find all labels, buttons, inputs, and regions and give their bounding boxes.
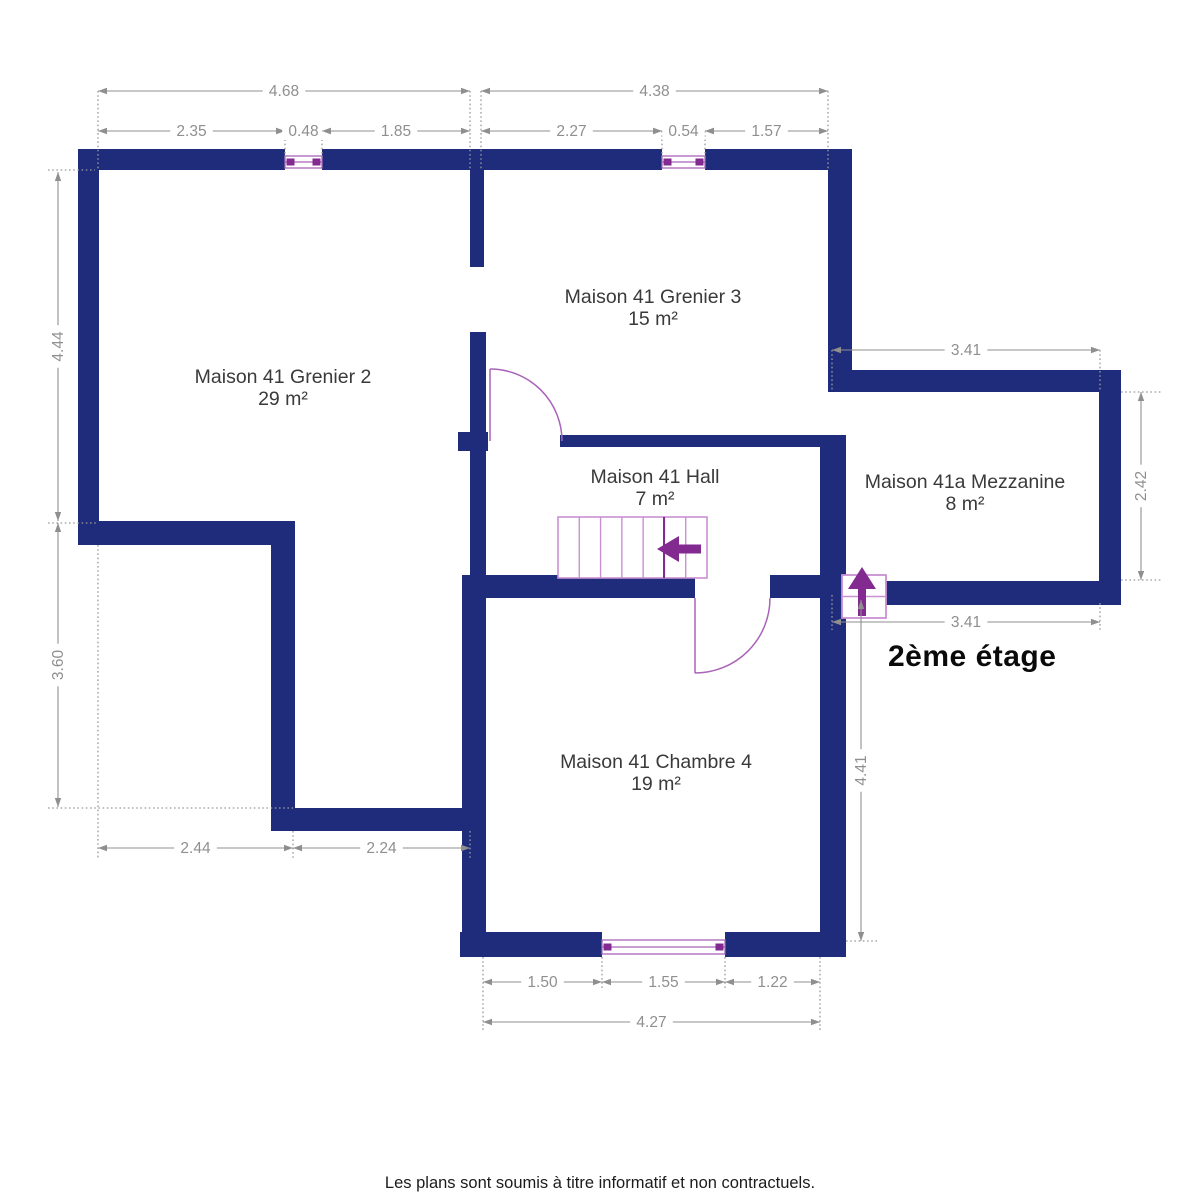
wall-segment bbox=[846, 370, 1121, 392]
dim-label-group: 0.48 bbox=[282, 122, 325, 140]
dim-arrowhead bbox=[811, 1019, 820, 1025]
dimension-value: 1.85 bbox=[381, 123, 411, 140]
dim-arrowhead bbox=[98, 88, 107, 94]
dim-arrowhead bbox=[593, 979, 602, 985]
wall-segment bbox=[78, 521, 295, 545]
dim-arrowhead bbox=[1091, 619, 1100, 625]
dimension-value: 2.27 bbox=[556, 123, 586, 140]
dim-arrowhead bbox=[811, 979, 820, 985]
dim-label-group: 2.24 bbox=[360, 839, 403, 857]
room-area: 19 m² bbox=[631, 773, 681, 795]
dim-arrowhead bbox=[461, 128, 470, 134]
door-arc bbox=[695, 598, 770, 673]
wall-segment bbox=[470, 170, 484, 267]
window-end-block bbox=[716, 944, 724, 951]
dimension-value: 2.44 bbox=[180, 840, 211, 857]
room-name: Maison 41 Hall bbox=[591, 466, 720, 488]
dim-label-group: 4.68 bbox=[263, 82, 306, 100]
room-name: Maison 41a Mezzanine bbox=[865, 471, 1066, 493]
door-arc bbox=[490, 369, 562, 441]
floor-plan-canvas: 4.684.382.350.481.852.270.541.574.443.60… bbox=[0, 0, 1200, 1200]
wall-segment bbox=[271, 808, 486, 831]
dimension-value: 4.27 bbox=[636, 1014, 666, 1031]
window-end-block bbox=[604, 944, 612, 951]
dim-arrowhead bbox=[55, 172, 61, 181]
dimension-value: 4.68 bbox=[269, 83, 299, 100]
dim-arrowhead bbox=[653, 128, 662, 134]
room-area: 29 m² bbox=[258, 388, 308, 410]
dim-arrowhead bbox=[819, 128, 828, 134]
dim-arrowhead bbox=[284, 845, 293, 851]
dim-arrowhead bbox=[98, 845, 107, 851]
dim-label-group: 1.22 bbox=[751, 973, 794, 991]
dim-label-group: 2.44 bbox=[174, 839, 217, 857]
dimension-value: 4.41 bbox=[853, 755, 870, 785]
dimension-value: 4.38 bbox=[639, 83, 669, 100]
window-end-block bbox=[313, 159, 321, 166]
dim-arrowhead bbox=[55, 523, 61, 532]
dimension-value: 2.42 bbox=[1133, 471, 1150, 501]
wall-segment bbox=[560, 435, 830, 447]
wall-segment bbox=[470, 332, 486, 598]
wall-segment bbox=[820, 435, 846, 957]
dimension-value: 1.50 bbox=[527, 974, 558, 991]
dim-arrowhead bbox=[483, 979, 492, 985]
dim-label-group: 1.55 bbox=[642, 973, 685, 991]
dim-arrowhead bbox=[293, 845, 302, 851]
window-end-block bbox=[664, 159, 672, 166]
room-name: Maison 41 Grenier 2 bbox=[195, 366, 372, 388]
wall-segment bbox=[1099, 370, 1121, 605]
dimension-value: 2.24 bbox=[366, 840, 397, 857]
wall-segment bbox=[770, 575, 846, 598]
dimension-value: 1.55 bbox=[648, 974, 678, 991]
window-end-block bbox=[696, 159, 704, 166]
wall-segment bbox=[78, 149, 99, 545]
dim-label-group: 0.54 bbox=[662, 122, 705, 140]
dim-arrowhead bbox=[1138, 392, 1144, 401]
dim-label-group: 1.85 bbox=[375, 122, 418, 140]
room-area: 15 m² bbox=[628, 308, 678, 330]
dim-label-group: 4.27 bbox=[630, 1013, 673, 1031]
wall-segment bbox=[725, 932, 846, 957]
window-end-block bbox=[287, 159, 295, 166]
dimension-value: 3.41 bbox=[951, 614, 981, 631]
dimension-value: 3.60 bbox=[50, 650, 67, 681]
dim-label-group: 3.41 bbox=[945, 613, 988, 631]
dim-label-group: 2.42 bbox=[1132, 465, 1150, 508]
dim-arrowhead bbox=[858, 932, 864, 941]
wall-segment bbox=[271, 521, 295, 831]
dim-label-group: 1.57 bbox=[745, 122, 788, 140]
dim-arrowhead bbox=[98, 128, 107, 134]
wall-segment bbox=[462, 575, 486, 957]
room-area: 7 m² bbox=[636, 488, 676, 510]
dim-arrowhead bbox=[819, 88, 828, 94]
dimension-value: 1.57 bbox=[751, 123, 781, 140]
room-name: Maison 41 Grenier 3 bbox=[565, 286, 742, 308]
dimension-value: 3.41 bbox=[951, 342, 981, 359]
dimension-value: 4.44 bbox=[50, 331, 67, 362]
wall-segment bbox=[480, 149, 662, 170]
dim-arrowhead bbox=[716, 979, 725, 985]
dim-label-group: 3.60 bbox=[49, 644, 67, 687]
wall-segment bbox=[322, 149, 480, 170]
dimension-value: 1.22 bbox=[757, 974, 787, 991]
dim-label-group: 2.35 bbox=[170, 122, 213, 140]
dim-arrowhead bbox=[55, 512, 61, 521]
wall-segment bbox=[460, 932, 602, 957]
dimension-value: 0.48 bbox=[288, 123, 318, 140]
dim-arrowhead bbox=[483, 1019, 492, 1025]
dim-arrowhead bbox=[481, 88, 490, 94]
dim-arrowhead bbox=[481, 128, 490, 134]
dimension-value: 0.54 bbox=[668, 123, 699, 140]
dim-label-group: 2.27 bbox=[550, 122, 593, 140]
dim-arrowhead bbox=[461, 88, 470, 94]
wall-segment bbox=[78, 149, 285, 170]
dim-label-group: 3.41 bbox=[945, 341, 988, 359]
dim-arrowhead bbox=[705, 128, 714, 134]
dim-arrowhead bbox=[55, 798, 61, 807]
dim-label-group: 1.50 bbox=[521, 973, 564, 991]
dim-label-group: 4.44 bbox=[49, 325, 67, 368]
wall-segment bbox=[846, 581, 1121, 605]
room-area: 8 m² bbox=[946, 493, 986, 515]
dim-arrowhead bbox=[1091, 347, 1100, 353]
room-name: Maison 41 Chambre 4 bbox=[560, 751, 752, 773]
wall-segment bbox=[458, 432, 488, 451]
dim-label-group: 4.41 bbox=[852, 749, 870, 792]
dim-arrowhead bbox=[725, 979, 734, 985]
floor-plan-page: 4.684.382.350.481.852.270.541.574.443.60… bbox=[0, 0, 1200, 1200]
dim-arrowhead bbox=[602, 979, 611, 985]
dimension-value: 2.35 bbox=[176, 123, 206, 140]
floor-title: 2ème étage bbox=[888, 640, 1188, 674]
disclaimer-text: Les plans sont soumis à titre informatif… bbox=[0, 1174, 1200, 1193]
dim-label-group: 4.38 bbox=[633, 82, 676, 100]
dim-arrowhead bbox=[1138, 571, 1144, 580]
